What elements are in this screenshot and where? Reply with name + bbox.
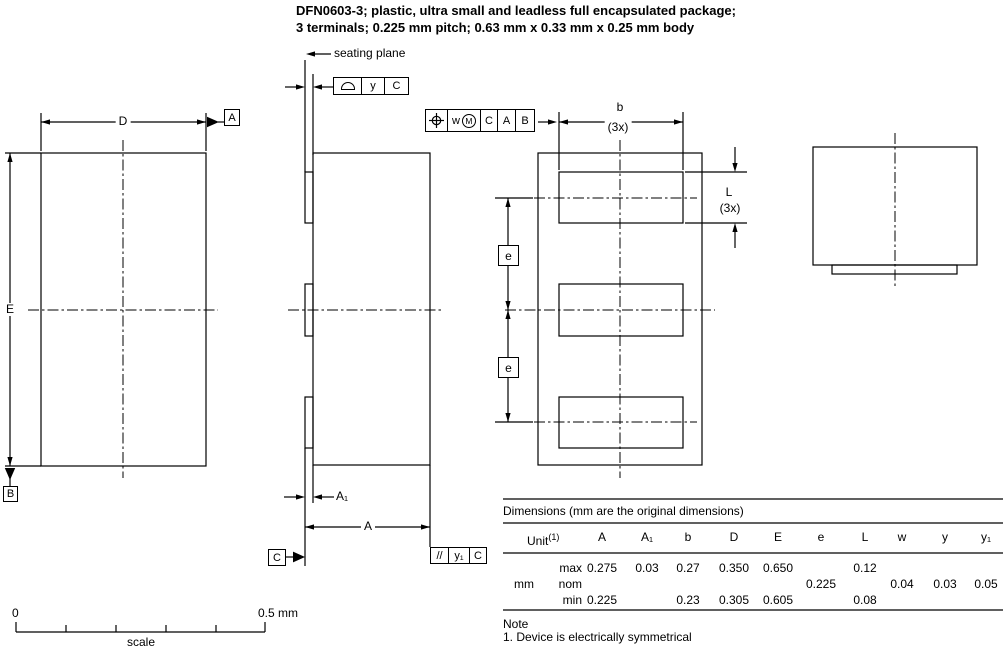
table-header-unit: Unit(1) xyxy=(527,531,559,548)
parallelism-icon: // xyxy=(431,548,448,563)
datum-c-triangle xyxy=(286,552,305,563)
parallelism-tolerance-frame: // y₁ C xyxy=(430,547,487,564)
dim-label-L-count: (3x) xyxy=(720,202,741,215)
col-header-E: E xyxy=(774,531,782,544)
unit-note-ref: (1) xyxy=(548,532,559,542)
row-label-nom: nom xyxy=(546,578,582,591)
position-frame-leader xyxy=(538,119,557,124)
side-view-outline xyxy=(313,153,430,465)
cell-min-A: 0.225 xyxy=(587,594,617,607)
datum-letter-b: B xyxy=(7,488,14,500)
row-label-min: min xyxy=(546,594,582,607)
cell-max-D: 0.350 xyxy=(719,562,749,575)
material-condition-icon: M xyxy=(462,114,476,128)
col-header-A1: A₁ xyxy=(641,531,653,544)
dim-label-A1: A₁ xyxy=(336,490,348,503)
profile-of-surface-icon xyxy=(334,78,361,94)
profile-tolerance-value: y xyxy=(361,78,384,94)
row-label-max: max xyxy=(546,562,582,575)
dim-a1-lines xyxy=(284,494,334,499)
datum-letter-c: C xyxy=(273,552,281,564)
parallelism-tolerance-value: y₁ xyxy=(448,548,469,563)
datum-letter-a: A xyxy=(228,112,235,124)
cell-min-b: 0.23 xyxy=(676,594,699,607)
profile-frame-arrows xyxy=(285,84,333,89)
parallelism-tolerance-datum: C xyxy=(469,548,486,563)
dim-label-b: b xyxy=(617,101,624,114)
dim-l-lines xyxy=(732,147,737,248)
unit-value: mm xyxy=(514,578,534,591)
datum-a-triangle xyxy=(207,117,224,127)
scale-caption: scale xyxy=(127,636,155,648)
scale-end-label: 0.5 mm xyxy=(258,607,298,620)
col-header-w: w xyxy=(898,531,907,544)
cell-nom-w: 0.04 xyxy=(890,578,913,591)
page-title-line1: DFN0603-3; plastic, ultra small and lead… xyxy=(296,3,736,19)
position-datum-3: B xyxy=(515,110,534,131)
cell-max-b: 0.27 xyxy=(676,562,699,575)
profile-tolerance-frame: y C xyxy=(333,77,409,95)
cell-nom-y1: 0.05 xyxy=(974,578,997,591)
unit-label: Unit xyxy=(527,534,548,548)
plan-view-centerlines xyxy=(28,140,218,478)
cell-nom-y: 0.03 xyxy=(933,578,956,591)
dim-label-e2: e xyxy=(505,361,512,375)
cell-max-L: 0.12 xyxy=(853,562,876,575)
dim-label-E: E xyxy=(3,303,17,316)
cell-nom-e: 0.225 xyxy=(806,578,836,591)
profile-tolerance-datum: C xyxy=(384,78,408,94)
cell-min-D: 0.305 xyxy=(719,594,749,607)
cell-min-E: 0.605 xyxy=(763,594,793,607)
true-position-icon xyxy=(426,110,447,131)
cell-max-A: 0.275 xyxy=(587,562,617,575)
datum-box-a: A xyxy=(224,109,240,126)
datum-box-c: C xyxy=(268,549,286,566)
datum-box-b: B xyxy=(3,486,18,502)
col-header-A: A xyxy=(598,531,606,544)
position-datum-1: C xyxy=(480,110,497,131)
position-tolerance-letter: w xyxy=(452,115,460,127)
bottom-extension-lines xyxy=(495,112,747,422)
dim-label-A: A xyxy=(361,520,375,533)
scale-start-label: 0 xyxy=(12,607,19,620)
dim-label-L: L xyxy=(726,186,733,199)
dim-box-e2: e xyxy=(498,357,519,378)
cell-max-E: 0.650 xyxy=(763,562,793,575)
col-header-L: L xyxy=(862,531,869,544)
col-header-D: D xyxy=(730,531,739,544)
drawing-geometry xyxy=(0,0,1006,648)
col-header-y1: y₁ xyxy=(981,531,991,544)
position-datum-2: A xyxy=(497,110,515,131)
cell-min-L: 0.08 xyxy=(853,594,876,607)
dim-box-e1: e xyxy=(498,245,519,266)
note-item-1: 1. Device is electrically symmetrical xyxy=(503,631,692,644)
page-title-line2: 3 terminals; 0.225 mm pitch; 0.63 mm x 0… xyxy=(296,20,694,36)
cell-max-A1: 0.03 xyxy=(635,562,658,575)
col-header-e: e xyxy=(818,531,825,544)
seating-plane-arrow xyxy=(306,51,331,56)
dim-label-D: D xyxy=(116,115,131,128)
dim-label-e1: e xyxy=(505,249,512,263)
scale-bar-lines xyxy=(16,622,265,632)
position-tolerance-frame: w M C A B xyxy=(425,109,535,132)
seating-plane-label: seating plane xyxy=(334,47,405,60)
package-outline-drawing: DFN0603-3; plastic, ultra small and lead… xyxy=(0,0,1006,648)
datum-b-triangle xyxy=(5,468,15,486)
col-header-y: y xyxy=(942,531,948,544)
table-caption: Dimensions (mm are the original dimensio… xyxy=(503,505,744,518)
col-header-b: b xyxy=(685,531,692,544)
position-tolerance-value: w M xyxy=(447,110,480,131)
dim-label-b-count: (3x) xyxy=(605,121,632,134)
